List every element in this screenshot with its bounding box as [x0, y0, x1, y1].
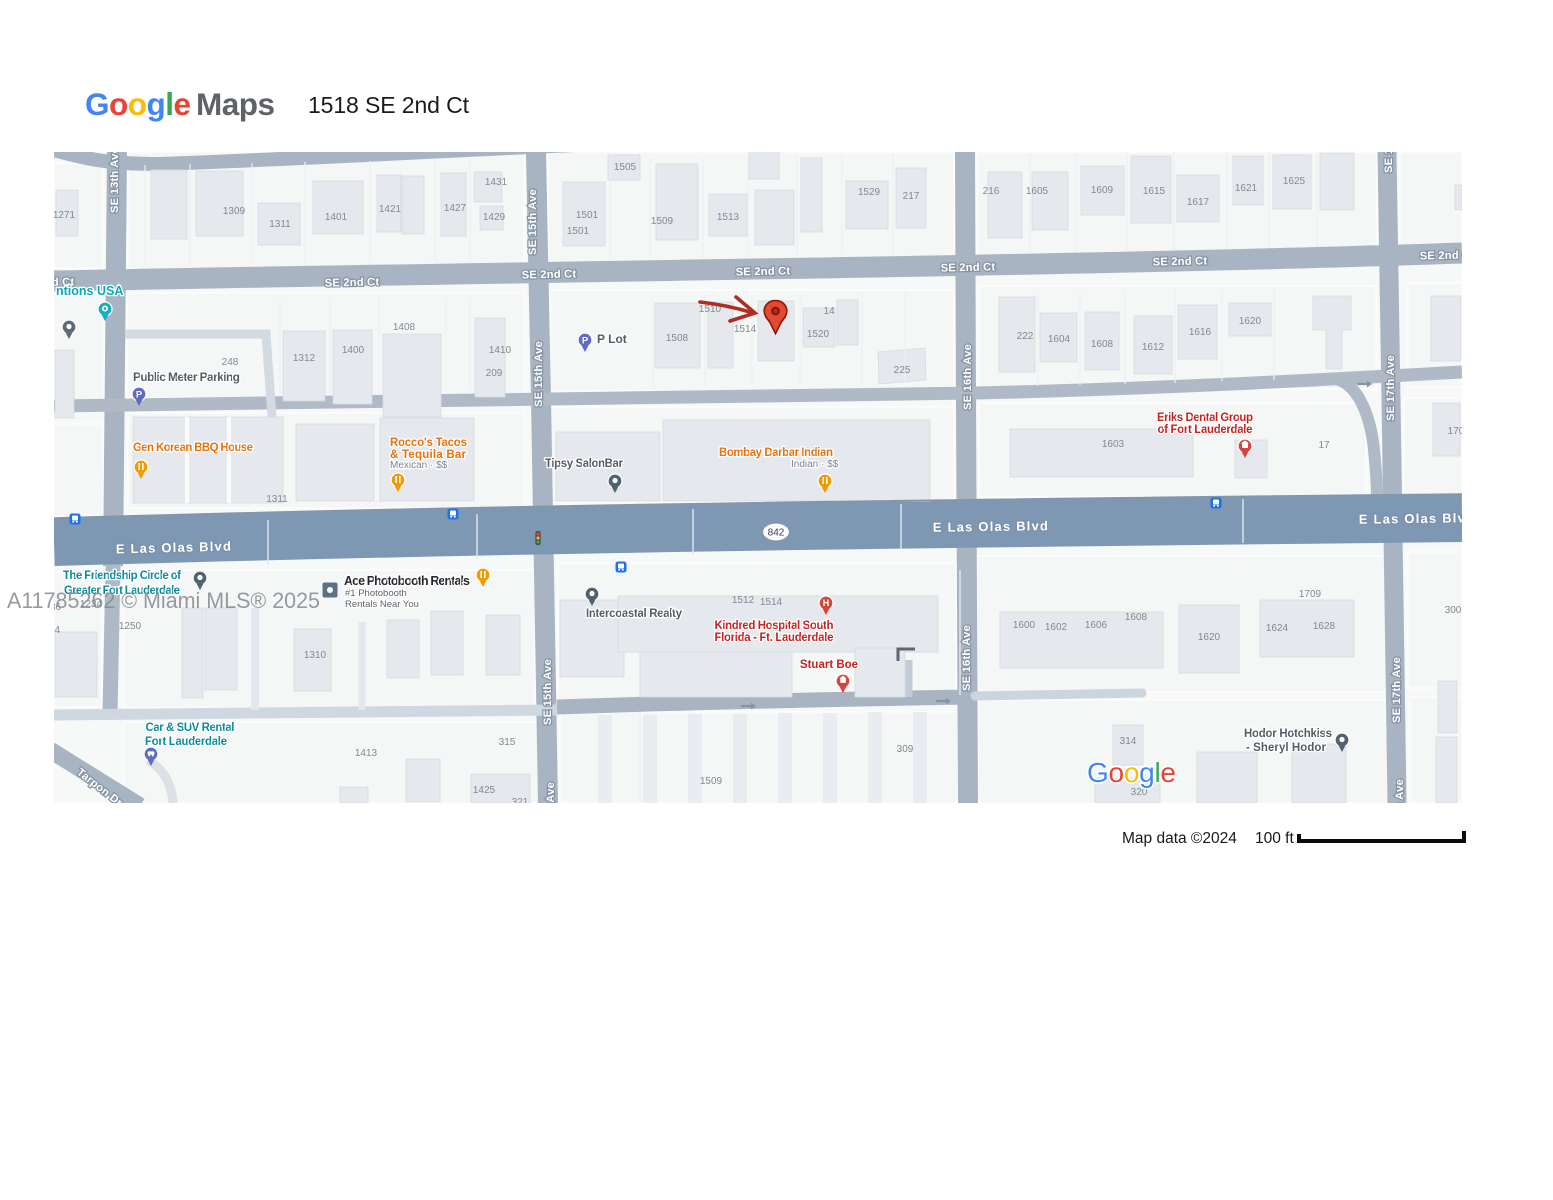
- svg-text:1620: 1620: [1239, 316, 1262, 327]
- svg-text:217: 217: [903, 191, 920, 202]
- svg-text:1512: 1512: [732, 595, 755, 606]
- svg-text:17: 17: [1318, 440, 1330, 451]
- svg-text:1602: 1602: [1045, 622, 1068, 633]
- svg-text:1425: 1425: [473, 785, 496, 796]
- svg-text:Fort Lauderdale: Fort Lauderdale: [145, 736, 227, 748]
- svg-text:ntions USA: ntions USA: [56, 284, 123, 298]
- svg-text:1621: 1621: [1235, 183, 1258, 194]
- svg-text:1311: 1311: [269, 219, 291, 230]
- svg-text:1529: 1529: [858, 187, 881, 198]
- svg-text:1400: 1400: [342, 345, 365, 356]
- svg-text:1427: 1427: [444, 203, 467, 214]
- svg-text:314: 314: [1120, 736, 1137, 747]
- svg-text:Car & SUV Rental: Car & SUV Rental: [146, 722, 235, 734]
- svg-text:1617: 1617: [1187, 197, 1210, 208]
- svg-text:1513: 1513: [717, 212, 740, 223]
- svg-text:SE 2nd Ct: SE 2nd Ct: [325, 276, 380, 289]
- svg-text:SE 16th Ave: SE 16th Ave: [962, 344, 974, 410]
- svg-text:Indian · $$: Indian · $$: [791, 459, 839, 470]
- svg-text:Mexican · $$: Mexican · $$: [390, 460, 448, 471]
- svg-text:309: 309: [897, 744, 914, 755]
- svg-text:of Fort Lauderdale: of Fort Lauderdale: [1158, 424, 1253, 436]
- svg-text:#1 Photobooth: #1 Photobooth: [345, 588, 407, 599]
- svg-text:1625: 1625: [1283, 176, 1306, 187]
- svg-text:1615: 1615: [1143, 186, 1166, 197]
- svg-text:1508: 1508: [666, 333, 689, 344]
- svg-text:1410: 1410: [489, 345, 512, 356]
- svg-text:1501: 1501: [567, 226, 590, 237]
- svg-text:1628: 1628: [1313, 621, 1336, 632]
- svg-text:320: 320: [1131, 787, 1148, 798]
- svg-text:1608: 1608: [1125, 612, 1148, 623]
- svg-text:SE 2nd Ct: SE 2nd Ct: [1153, 255, 1208, 268]
- svg-text:E Las Olas Blvd: E Las Olas Blvd: [933, 518, 1049, 535]
- svg-text:A11785262 © Miami MLS® 2025: A11785262 © Miami MLS® 2025: [7, 588, 320, 613]
- svg-text:14: 14: [823, 306, 835, 317]
- svg-text:Public Meter Parking: Public Meter Parking: [133, 370, 240, 384]
- svg-text:E Las Olas Blvd: E Las Olas Blvd: [116, 538, 233, 556]
- svg-text:1401: 1401: [325, 212, 348, 223]
- svg-text:1311: 1311: [266, 494, 288, 505]
- svg-text:1709: 1709: [1299, 589, 1322, 600]
- svg-text:Gen Korean BBQ House: Gen Korean BBQ House: [133, 442, 253, 454]
- svg-text:1624: 1624: [1266, 623, 1289, 634]
- svg-text:E Las Olas Blvd: E Las Olas Blvd: [1359, 510, 1475, 527]
- svg-text:1612: 1612: [1142, 342, 1165, 353]
- svg-text:Intercoastal Realty: Intercoastal Realty: [586, 608, 683, 620]
- svg-text:Rentals Near You: Rentals Near You: [345, 599, 419, 610]
- svg-text:1616: 1616: [1189, 327, 1212, 338]
- svg-text:P Lot: P Lot: [597, 332, 627, 346]
- svg-text:SE 15th Ave: SE 15th Ave: [542, 659, 554, 725]
- svg-text:1604: 1604: [1048, 334, 1071, 345]
- svg-text:Ace Photobooth Rentals: Ace Photobooth Rentals: [344, 574, 470, 588]
- svg-text:1606: 1606: [1085, 620, 1108, 631]
- svg-text:1520: 1520: [807, 329, 830, 340]
- svg-text:1509: 1509: [700, 776, 723, 787]
- svg-text:1518 SE 2nd Ct: 1518 SE 2nd Ct: [308, 92, 470, 118]
- svg-text:SE 17th Ave: SE 17th Ave: [1391, 657, 1403, 723]
- svg-text:842: 842: [768, 528, 785, 539]
- svg-text:1505: 1505: [614, 162, 637, 173]
- svg-text:300: 300: [1445, 605, 1462, 616]
- svg-text:Maps: Maps: [196, 86, 275, 122]
- svg-text:315: 315: [499, 737, 516, 748]
- svg-text:1271: 1271: [53, 210, 76, 221]
- svg-text:216: 216: [983, 186, 1000, 197]
- svg-text:Google: Google: [1087, 757, 1176, 788]
- svg-text:Bombay Darbar Indian: Bombay Darbar Indian: [719, 447, 833, 459]
- svg-text:1620: 1620: [1198, 632, 1221, 643]
- svg-text:1309: 1309: [223, 206, 246, 217]
- svg-text:1608: 1608: [1091, 339, 1114, 350]
- svg-text:1609: 1609: [1091, 185, 1114, 196]
- svg-text:SE 2nd Ct: SE 2nd Ct: [941, 261, 996, 274]
- svg-text:SE 17th Ave: SE 17th Ave: [1385, 355, 1397, 421]
- svg-text:SE 15th Ave: SE 15th Ave: [533, 341, 545, 407]
- svg-text:1421: 1421: [379, 204, 402, 215]
- svg-text:1429: 1429: [483, 212, 506, 223]
- svg-text:1413: 1413: [355, 748, 378, 759]
- svg-text:Stuart Boe: Stuart Boe: [800, 659, 858, 671]
- svg-text:Florida - Ft. Lauderdale: Florida - Ft. Lauderdale: [715, 632, 834, 644]
- svg-text:Google: Google: [85, 86, 191, 122]
- svg-text:Eriks Dental Group: Eriks Dental Group: [1157, 412, 1253, 424]
- svg-text:SE 15th Ave: SE 15th Ave: [527, 189, 539, 255]
- svg-text:Rocco's Tacos: Rocco's Tacos: [390, 437, 467, 449]
- svg-text:1408: 1408: [393, 322, 416, 333]
- svg-text:P: P: [136, 390, 143, 401]
- svg-text:1605: 1605: [1026, 186, 1049, 197]
- svg-text:SE 13th Ave: SE 13th Ave: [109, 147, 121, 213]
- svg-text:209: 209: [486, 368, 503, 379]
- svg-text:1312: 1312: [293, 353, 316, 364]
- svg-text:SE 2nd Ct: SE 2nd Ct: [522, 268, 577, 281]
- svg-text:- Sheryl Hodor: - Sheryl Hodor: [1246, 742, 1327, 754]
- svg-text:P: P: [582, 336, 589, 347]
- svg-text:1514: 1514: [734, 324, 757, 335]
- svg-text:Tipsy SalonBar: Tipsy SalonBar: [545, 458, 624, 470]
- svg-text:1509: 1509: [651, 216, 674, 227]
- svg-text:1600: 1600: [1013, 620, 1036, 631]
- svg-text:SE 2nd Ct: SE 2nd Ct: [736, 265, 791, 278]
- svg-text:1250: 1250: [119, 621, 142, 632]
- svg-text:1514: 1514: [760, 597, 783, 608]
- svg-text:1501: 1501: [576, 210, 599, 221]
- svg-text:222: 222: [1017, 331, 1034, 342]
- svg-text:100 ft: 100 ft: [1255, 830, 1294, 847]
- svg-text:248: 248: [222, 357, 239, 368]
- svg-text:H: H: [823, 598, 830, 608]
- svg-text:1431: 1431: [485, 177, 508, 188]
- svg-text:Kindred Hospital South: Kindred Hospital South: [715, 620, 834, 632]
- svg-text:1310: 1310: [304, 650, 327, 661]
- svg-text:The Friendship Circle of: The Friendship Circle of: [63, 570, 181, 582]
- svg-text:225: 225: [894, 365, 911, 376]
- svg-text:SE 16th Ave: SE 16th Ave: [961, 625, 973, 691]
- svg-text:1603: 1603: [1102, 439, 1125, 450]
- svg-text:Map data ©2024: Map data ©2024: [1122, 830, 1237, 847]
- svg-text:Hodor Hotchkiss: Hodor Hotchkiss: [1244, 728, 1332, 740]
